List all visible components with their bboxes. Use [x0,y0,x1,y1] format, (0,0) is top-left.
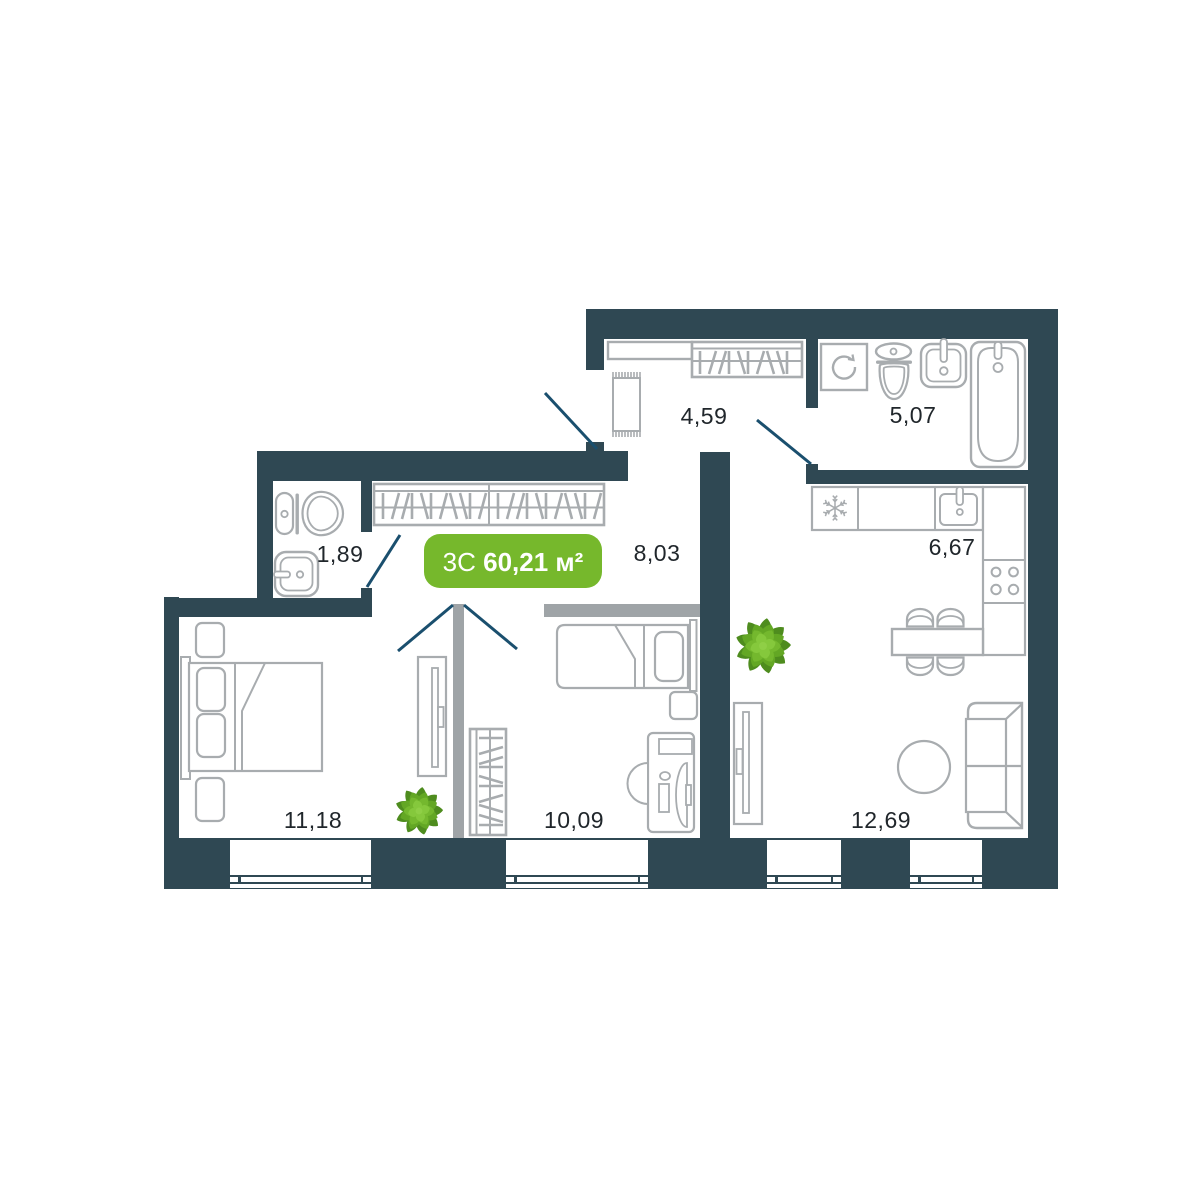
svg-text:6,67: 6,67 [929,534,976,560]
svg-text:12,69: 12,69 [851,807,911,833]
svg-text:11,18: 11,18 [284,807,342,833]
svg-text:8,03: 8,03 [634,540,681,566]
svg-text:1,89: 1,89 [317,541,364,567]
svg-text:4,59: 4,59 [681,403,728,429]
svg-text:10,09: 10,09 [544,807,604,833]
svg-text:3С 60,21 м²: 3С 60,21 м² [443,547,584,577]
svg-text:5,07: 5,07 [890,402,937,428]
